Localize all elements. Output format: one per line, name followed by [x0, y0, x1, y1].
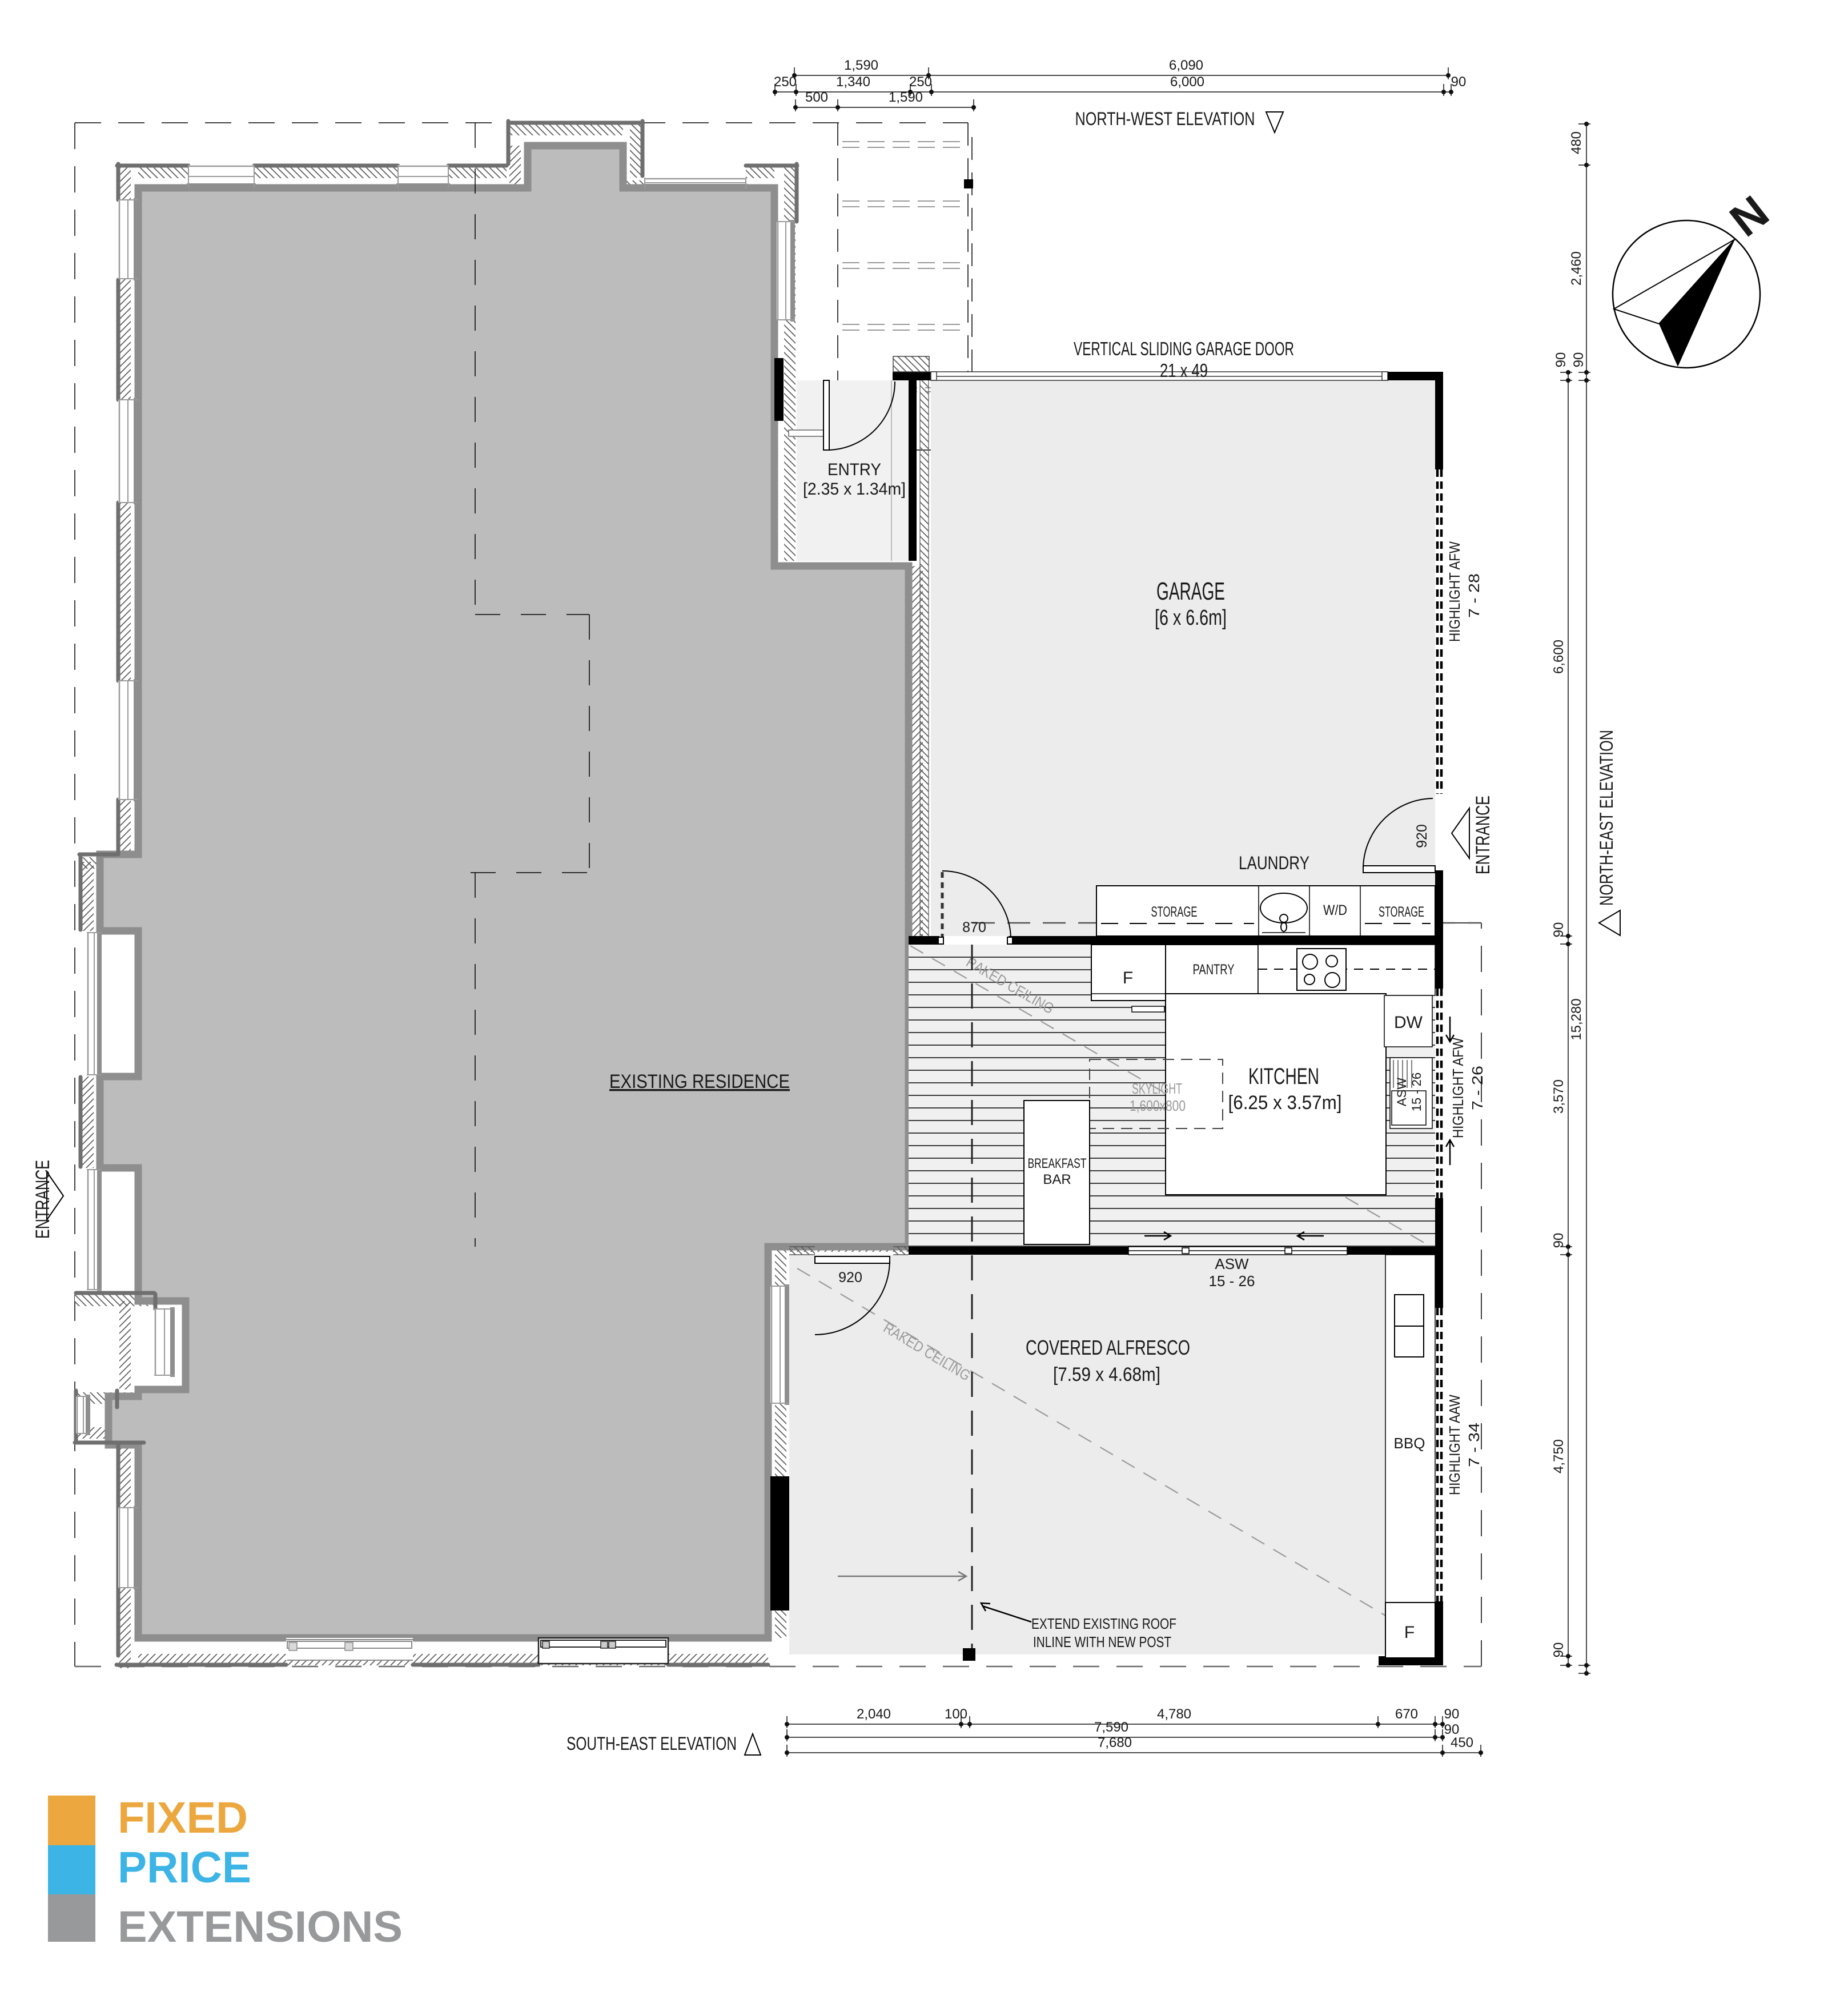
- svg-text:EXTEND EXISTING ROOF: EXTEND EXISTING ROOF: [1031, 1615, 1176, 1632]
- svg-text:ENTRANCE: ENTRANCE: [1472, 796, 1494, 874]
- svg-text:[6 x 6.6m]: [6 x 6.6m]: [1155, 606, 1227, 630]
- svg-text:870: 870: [962, 919, 986, 935]
- svg-text:STORAGE: STORAGE: [1151, 904, 1198, 920]
- svg-text:250: 250: [909, 74, 932, 90]
- svg-text:6,000: 6,000: [1170, 74, 1204, 90]
- svg-text:GARAGE: GARAGE: [1156, 577, 1225, 605]
- svg-text:7 - 34: 7 - 34: [1465, 1423, 1483, 1467]
- svg-text:15 - 26: 15 - 26: [1209, 1272, 1255, 1290]
- svg-text:7,680: 7,680: [1098, 1735, 1132, 1750]
- svg-text:[6.25 x 3.57m]: [6.25 x 3.57m]: [1228, 1092, 1342, 1114]
- svg-text:LAUNDRY: LAUNDRY: [1239, 853, 1309, 873]
- svg-text:HIGHLIGHT AFW: HIGHLIGHT AFW: [1449, 1038, 1467, 1138]
- svg-text:250: 250: [774, 74, 797, 90]
- svg-text:VERTICAL SLIDING GARAGE DOOR: VERTICAL SLIDING GARAGE DOOR: [1074, 338, 1294, 359]
- svg-text:STORAGE: STORAGE: [1379, 904, 1424, 920]
- svg-text:90: 90: [1451, 74, 1467, 90]
- svg-text:7 - 26: 7 - 26: [1469, 1066, 1486, 1110]
- svg-text:90: 90: [1551, 1233, 1566, 1248]
- svg-text:PANTRY: PANTRY: [1193, 962, 1235, 978]
- svg-text:COVERED ALFRESCO: COVERED ALFRESCO: [1026, 1336, 1190, 1359]
- svg-text:90: 90: [1553, 352, 1569, 368]
- svg-text:21 x 49: 21 x 49: [1160, 360, 1208, 381]
- svg-text:SKYLIGHT: SKYLIGHT: [1132, 1080, 1182, 1097]
- svg-text:1,590: 1,590: [844, 58, 878, 73]
- svg-text:2,040: 2,040: [857, 1706, 891, 1722]
- svg-text:920: 920: [1414, 824, 1430, 848]
- svg-text:[7.59 x 4.68m]: [7.59 x 4.68m]: [1053, 1364, 1160, 1385]
- svg-text:FIXED: FIXED: [118, 1793, 248, 1842]
- svg-text:ASW: ASW: [1395, 1078, 1409, 1106]
- svg-text:W/D: W/D: [1323, 902, 1347, 918]
- svg-text:90: 90: [1571, 352, 1586, 368]
- svg-text:4,780: 4,780: [1157, 1706, 1191, 1722]
- svg-text:ENTRANCE: ENTRANCE: [32, 1160, 54, 1239]
- svg-text:PRICE: PRICE: [118, 1843, 251, 1892]
- svg-text:ASW: ASW: [1215, 1255, 1249, 1272]
- svg-text:BREAKFAST: BREAKFAST: [1028, 1156, 1087, 1171]
- svg-text:1,590: 1,590: [889, 90, 923, 105]
- svg-text:SOUTH-EAST ELEVATION: SOUTH-EAST ELEVATION: [567, 1733, 737, 1754]
- svg-text:450: 450: [1451, 1735, 1473, 1750]
- svg-text:6,090: 6,090: [1169, 58, 1203, 73]
- svg-text:7 - 28: 7 - 28: [1465, 573, 1483, 618]
- svg-text:90: 90: [1551, 1642, 1566, 1658]
- svg-text:NORTH-EAST ELEVATION: NORTH-EAST ELEVATION: [1596, 730, 1617, 906]
- svg-text:90: 90: [1551, 922, 1566, 938]
- svg-text:ENTRY: ENTRY: [827, 460, 881, 479]
- svg-text:HIGHLIGHT AFW: HIGHLIGHT AFW: [1446, 541, 1463, 642]
- svg-text:HIGHLIGHT AAW: HIGHLIGHT AAW: [1446, 1395, 1463, 1495]
- svg-text:500: 500: [805, 90, 828, 105]
- svg-text:7,590: 7,590: [1094, 1720, 1128, 1735]
- svg-text:[2.35 x 1.34m]: [2.35 x 1.34m]: [803, 480, 906, 499]
- svg-text:480: 480: [1569, 131, 1584, 154]
- svg-text:NORTH-WEST ELEVATION: NORTH-WEST ELEVATION: [1075, 109, 1255, 129]
- svg-text:EXTENSIONS: EXTENSIONS: [118, 1902, 403, 1951]
- svg-text:15 - 26: 15 - 26: [1409, 1073, 1424, 1112]
- svg-text:1,340: 1,340: [836, 74, 870, 90]
- svg-text:3,570: 3,570: [1551, 1079, 1566, 1114]
- svg-text:920: 920: [838, 1270, 862, 1286]
- svg-text:4,750: 4,750: [1551, 1439, 1566, 1473]
- svg-text:1,600x800: 1,600x800: [1130, 1097, 1186, 1114]
- svg-text:15,280: 15,280: [1569, 998, 1584, 1040]
- svg-text:2,460: 2,460: [1569, 251, 1584, 286]
- svg-text:6,600: 6,600: [1551, 640, 1566, 674]
- svg-text:F: F: [1404, 1623, 1415, 1642]
- svg-text:90: 90: [1444, 1706, 1460, 1722]
- svg-text:KITCHEN: KITCHEN: [1248, 1064, 1319, 1089]
- svg-text:DW: DW: [1394, 1013, 1423, 1032]
- svg-text:BBQ: BBQ: [1394, 1435, 1425, 1452]
- svg-text:INLINE WITH NEW POST: INLINE WITH NEW POST: [1033, 1633, 1171, 1650]
- svg-text:100: 100: [945, 1706, 967, 1722]
- svg-text:BAR: BAR: [1043, 1172, 1071, 1187]
- svg-text:EXISTING RESIDENCE: EXISTING RESIDENCE: [609, 1071, 790, 1093]
- svg-text:670: 670: [1395, 1706, 1418, 1722]
- svg-text:F: F: [1123, 969, 1133, 987]
